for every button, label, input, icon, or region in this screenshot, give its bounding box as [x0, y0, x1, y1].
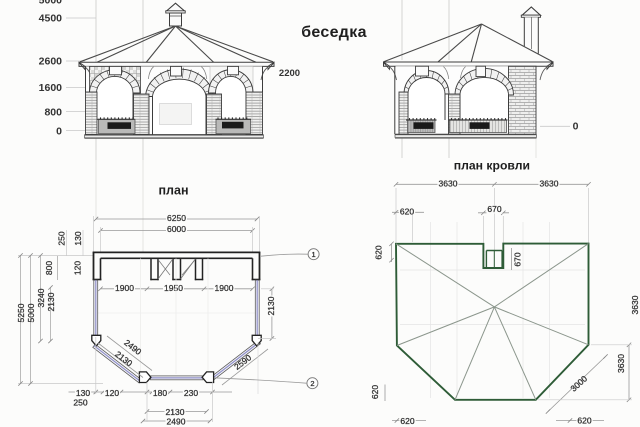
svg-text:3240: 3240 — [36, 288, 46, 307]
svg-text:620: 620 — [577, 415, 591, 425]
svg-text:6000: 6000 — [167, 224, 186, 234]
svg-text:800: 800 — [44, 261, 54, 275]
svg-text:0: 0 — [56, 126, 62, 138]
svg-text:5000: 5000 — [39, 0, 63, 7]
svg-text:1900: 1900 — [115, 283, 134, 293]
svg-text:план: план — [159, 183, 189, 197]
svg-text:план кровли: план кровли — [454, 158, 530, 172]
svg-text:250: 250 — [57, 231, 67, 245]
svg-text:0: 0 — [573, 121, 579, 133]
svg-text:620: 620 — [370, 385, 380, 399]
svg-text:180: 180 — [153, 388, 167, 398]
svg-text:120: 120 — [73, 261, 83, 275]
svg-text:120: 120 — [105, 388, 119, 398]
svg-text:620: 620 — [400, 416, 414, 426]
svg-text:2: 2 — [310, 379, 314, 388]
svg-text:5000: 5000 — [26, 303, 36, 322]
svg-text:2200: 2200 — [279, 68, 300, 79]
svg-text:800: 800 — [44, 107, 62, 119]
svg-text:4500: 4500 — [39, 13, 63, 25]
svg-text:2130: 2130 — [46, 292, 56, 311]
svg-text:1600: 1600 — [39, 82, 63, 94]
svg-text:беседка: беседка — [301, 24, 367, 41]
svg-text:5250: 5250 — [16, 303, 26, 322]
svg-text:250: 250 — [73, 397, 87, 407]
svg-text:1950: 1950 — [164, 283, 183, 293]
svg-text:2490: 2490 — [167, 416, 186, 426]
svg-text:130: 130 — [73, 231, 83, 245]
svg-text:1: 1 — [312, 250, 316, 259]
svg-text:3630: 3630 — [540, 179, 559, 189]
svg-text:2130: 2130 — [266, 296, 276, 315]
svg-text:6250: 6250 — [167, 213, 186, 223]
svg-text:620: 620 — [400, 206, 414, 216]
svg-text:670: 670 — [513, 252, 523, 266]
svg-text:3630: 3630 — [439, 179, 458, 189]
svg-text:230: 230 — [184, 388, 198, 398]
svg-text:3630: 3630 — [616, 354, 626, 373]
svg-text:620: 620 — [374, 245, 384, 259]
svg-text:670: 670 — [487, 204, 501, 214]
svg-text:1900: 1900 — [215, 283, 234, 293]
svg-text:2600: 2600 — [39, 56, 63, 68]
svg-text:3630: 3630 — [630, 295, 640, 314]
